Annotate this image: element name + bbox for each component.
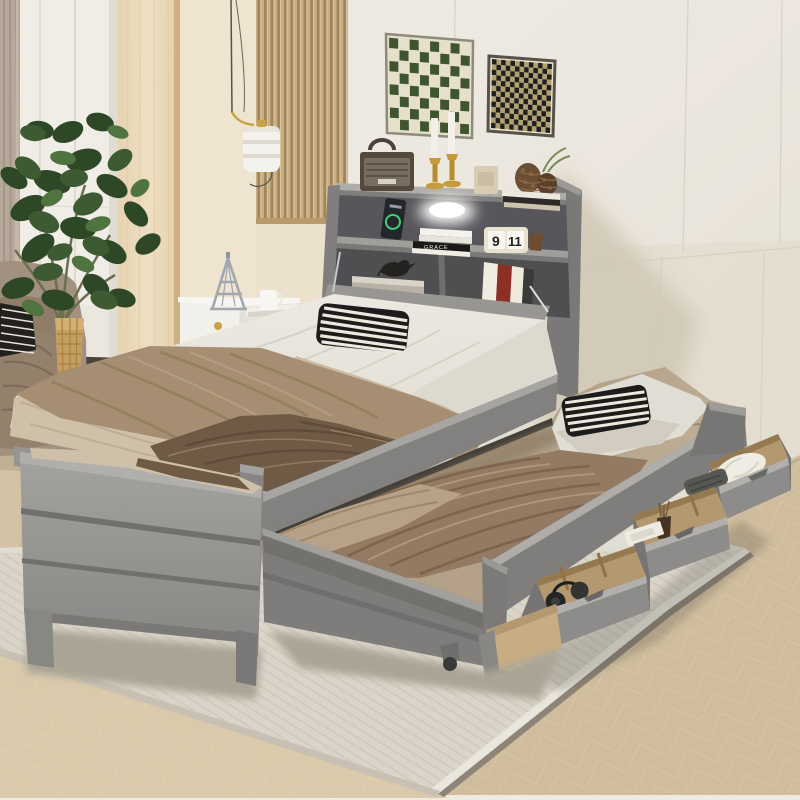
svg-text:11: 11 [508, 234, 522, 249]
svg-text:9: 9 [492, 233, 500, 249]
